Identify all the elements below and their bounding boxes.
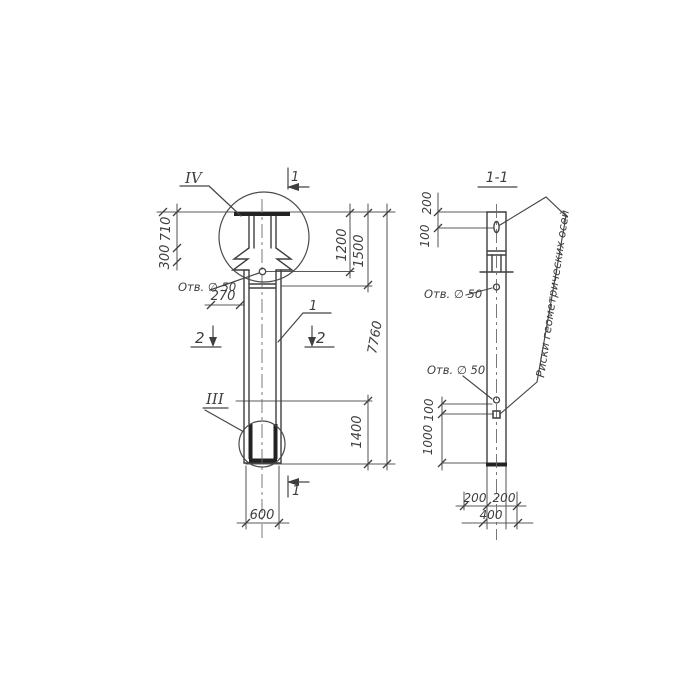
dim-top-100: 100 [418,224,432,247]
main-arrowheads [209,183,316,486]
main-view: IV III 1 1 2 2 1 Отв. ∅ 50 270 600 710 3… [157,168,395,542]
dim-bottom-right: 200 [493,491,516,505]
section-arrow-left-down [209,337,217,347]
section-title: 1-1 [486,170,509,186]
cut-label-left: 2 [195,329,205,347]
detail-marker-iv: IV [184,169,204,187]
cut-label-bottom: 1 [292,484,300,499]
dim-bottom-total: 400 [480,508,503,522]
dim-mid-100: 100 [422,398,436,421]
dim-width: 600 [250,508,275,523]
drawing-sheet: IV III 1 1 2 2 1 Отв. ∅ 50 270 600 710 3… [0,0,700,700]
part-callout-label: 1 [309,299,317,314]
pile-outline [233,215,292,463]
dim-head-height: 710 [159,217,174,242]
dim-tip-length: 1400 [350,415,365,448]
hole-note-lower: Отв. ∅ 50 [427,363,485,377]
dim-bottom-left: 200 [464,491,487,505]
detail-marker-iii: III [205,390,225,408]
hole-note-upper: Отв. ∅ 50 [424,287,482,301]
dim-flare-height: 300 [158,245,173,270]
dim-top-200: 200 [420,191,434,214]
section-extension-lines [438,193,533,529]
cut-label-right: 2 [316,329,326,347]
section-view: 1-1 200 100 Отв. ∅ 50 Отв. ∅ 50 100 1000… [418,170,572,540]
section-arrow-right-down [308,337,316,347]
dim-lower-1000: 1000 [421,424,435,455]
dim-overall-length: 7760 [365,320,386,355]
dim-top-to-hole: 1200 [335,228,350,261]
hole-circle-main [259,268,265,274]
technical-drawing: IV III 1 1 2 2 1 Отв. ∅ 50 270 600 710 3… [0,0,700,700]
cut-label-top: 1 [291,170,299,185]
axes-note: Риски геометрических осей [533,209,572,379]
dim-top-to-splice: 1500 [352,234,367,267]
dim-hole-offset: 270 [211,289,236,304]
